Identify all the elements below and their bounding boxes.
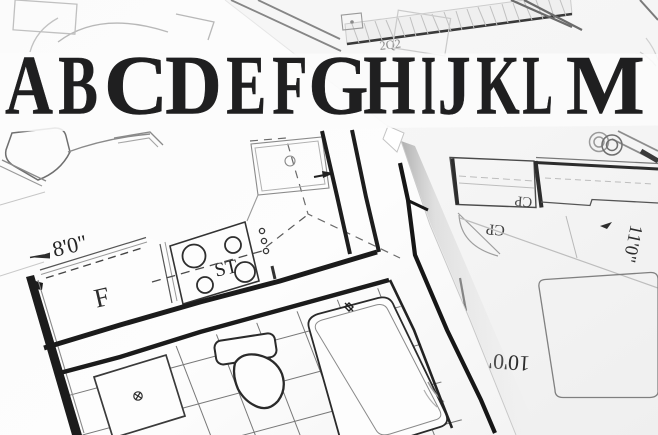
svg-text:J: J [438, 39, 471, 132]
svg-text:CP: CP [514, 192, 533, 209]
svg-text:A: A [5, 39, 53, 132]
svg-text:F: F [272, 39, 307, 133]
svg-text:H: H [363, 38, 415, 132]
svg-text:E: E [226, 39, 266, 132]
svg-text:CP: CP [485, 220, 505, 238]
svg-text:D: D [165, 38, 222, 132]
svg-text:B: B [58, 38, 98, 132]
svg-text:G: G [308, 38, 368, 132]
svg-text:C: C [104, 38, 169, 132]
svg-text:I: I [421, 40, 436, 133]
svg-text:L: L [523, 39, 553, 132]
svg-text:M: M [566, 39, 645, 133]
svg-text:K: K [476, 39, 520, 132]
